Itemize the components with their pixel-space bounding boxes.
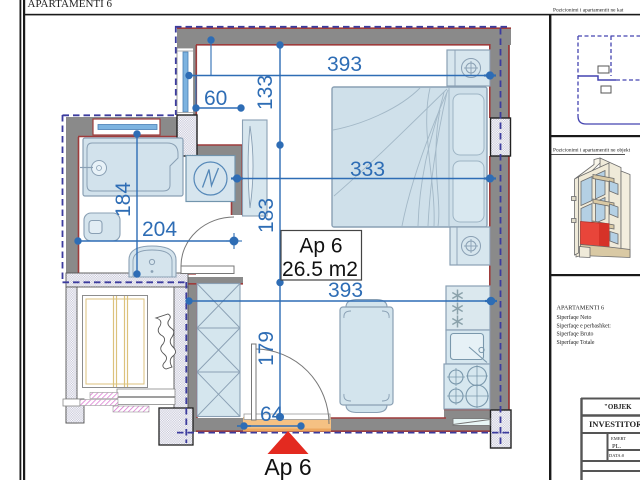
svg-text:PL.: PL. (612, 443, 622, 450)
svg-text:133: 133 (254, 75, 277, 110)
svg-text:APARTAMENTI 6: APARTAMENTI 6 (557, 305, 605, 312)
svg-text:64: 64 (260, 403, 284, 426)
svg-text:Ap 6: Ap 6 (264, 454, 311, 480)
svg-text:184: 184 (112, 182, 135, 217)
svg-text:Siperfaqe Neto: Siperfaqe Neto (557, 314, 592, 321)
svg-text:393: 393 (328, 279, 363, 302)
svg-text:204: 204 (142, 218, 177, 241)
svg-text:DATA:0: DATA:0 (609, 453, 625, 458)
svg-text:Ap 6: Ap 6 (299, 235, 342, 258)
svg-text:APARTAMENTI 6: APARTAMENTI 6 (28, 0, 113, 10)
svg-text:INVESTITOR: INVESTITOR (589, 419, 640, 429)
svg-text:"OBJEK: "OBJEK (604, 403, 632, 411)
svg-text:Pozicionimi i apartamentit ne: Pozicionimi i apartamentit ne kat (553, 8, 624, 14)
svg-text:60: 60 (204, 87, 227, 110)
svg-text:Pozicionimi i apartamentit ne: Pozicionimi i apartamentit ne objekt (553, 148, 631, 154)
svg-text:333: 333 (350, 158, 385, 181)
svg-text:393: 393 (327, 53, 362, 76)
svg-text:EMERT: EMERT (611, 436, 626, 441)
svg-text:183: 183 (255, 198, 278, 233)
svg-text:Siperfaqe Bruto: Siperfaqe Bruto (557, 331, 594, 338)
svg-text:26.5 m2: 26.5 m2 (282, 258, 358, 281)
svg-text:179: 179 (255, 331, 278, 366)
svg-text:Siperfaqe Totale: Siperfaqe Totale (557, 339, 595, 346)
svg-text:Siperfaqe e perbashket:: Siperfaqe e perbashket: (557, 322, 612, 329)
